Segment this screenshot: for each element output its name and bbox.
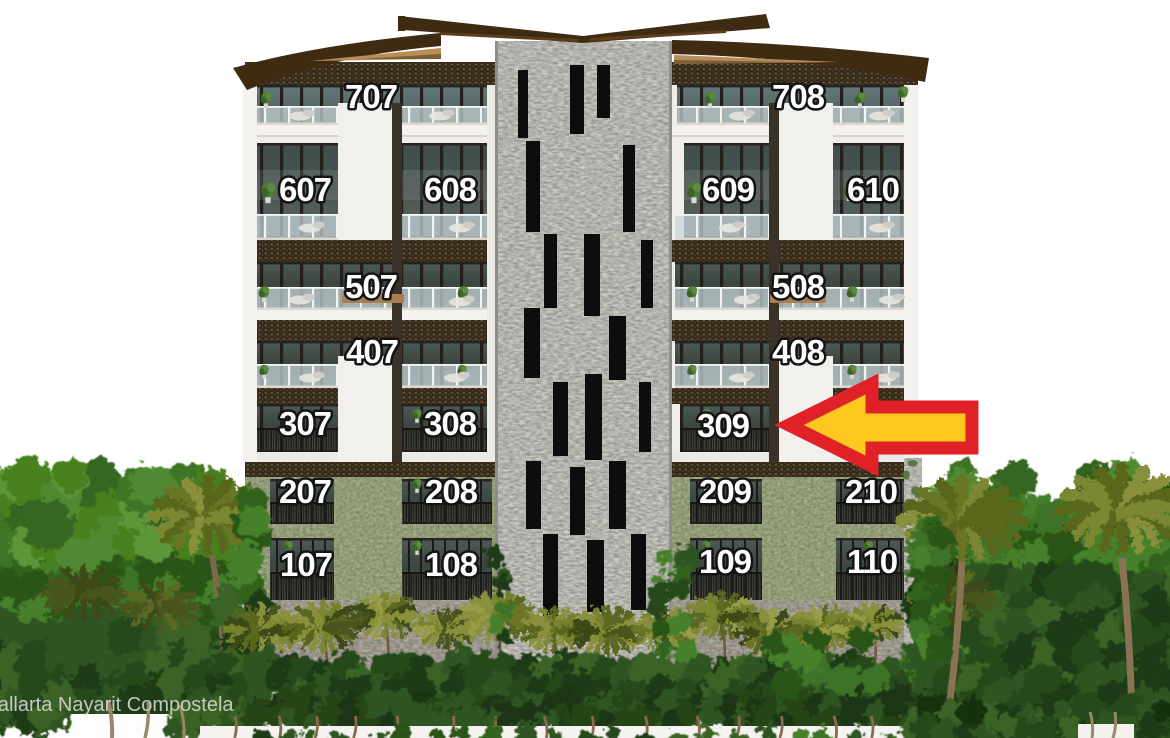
svg-text:708: 708 — [772, 78, 825, 115]
svg-text:208: 208 — [425, 473, 478, 510]
svg-text:307: 307 — [279, 405, 331, 442]
svg-text:607: 607 — [279, 171, 331, 208]
svg-text:609: 609 — [702, 171, 755, 208]
svg-text:109: 109 — [699, 543, 752, 580]
svg-text:610: 610 — [847, 171, 899, 208]
svg-text:707: 707 — [345, 78, 397, 115]
svg-text:608: 608 — [424, 171, 477, 208]
svg-text:209: 209 — [699, 473, 752, 510]
svg-text:508: 508 — [772, 268, 825, 305]
svg-text:408: 408 — [772, 333, 825, 370]
svg-text:107: 107 — [280, 546, 332, 583]
svg-text:210: 210 — [845, 473, 897, 510]
svg-text:207: 207 — [279, 473, 331, 510]
svg-text:507: 507 — [345, 268, 397, 305]
svg-text:110: 110 — [847, 543, 897, 580]
svg-text:309: 309 — [697, 407, 750, 444]
svg-text:407: 407 — [346, 333, 398, 370]
svg-text:308: 308 — [424, 405, 477, 442]
svg-text:Vallarta Nayarit Compostela: Vallarta Nayarit Compostela — [0, 694, 234, 716]
svg-text:108: 108 — [425, 546, 478, 583]
